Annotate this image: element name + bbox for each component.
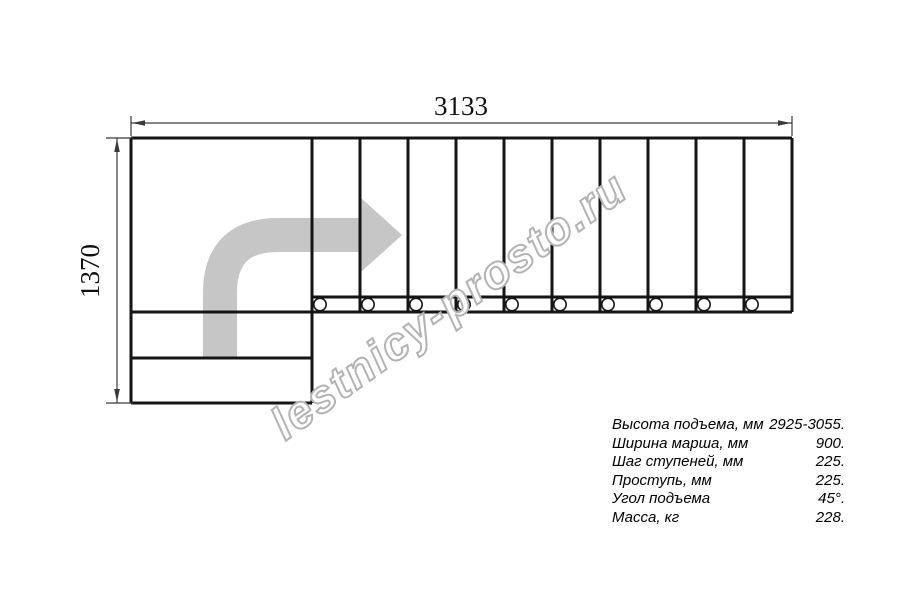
spec-value: 45°. [818,490,845,509]
spec-label: Высота подъема, мм [612,416,764,435]
spec-label: Масса, кг [612,509,679,528]
baluster-circle [314,298,326,310]
spec-value: 900. [816,435,845,454]
staircase-plan-page: 3133 1370 lestnicy-prosto.ru Высота подъ… [0,0,900,600]
spec-value: 225. [816,472,845,491]
spec-row: Шаг ступеней, мм 225. [612,453,845,472]
height-dimension: 1370 [75,138,133,403]
direction-arrow-head [361,198,402,272]
baluster-circle [698,298,710,310]
baluster-circle [554,298,566,310]
baluster-circles [314,298,758,310]
spec-row: Ширина марша, мм 900. [612,435,845,454]
spec-label: Ширина марша, мм [612,435,748,454]
width-dimension-label: 3133 [434,91,488,121]
spec-label: Угол подъема [612,490,710,509]
dimension-arrowhead-top [114,139,120,152]
width-dimension: 3133 [131,91,792,136]
dimension-arrowhead-bottom [114,389,120,402]
spec-row: Угол подъема 45°. [612,490,845,509]
height-dimension-label: 1370 [75,244,105,298]
height-dimension-lines [106,138,133,403]
baluster-circle [602,298,614,310]
dimension-arrowhead-left [132,120,145,126]
spec-value: 228. [816,509,845,528]
specs-table: Высота подъема, мм 2925-3055. Ширина мар… [612,416,845,528]
spec-row: Масса, кг 228. [612,509,845,528]
spec-row: Высота подъема, мм 2925-3055. [612,416,845,435]
spec-value: 2925-3055. [769,416,845,435]
baluster-circle [506,298,518,310]
spec-value: 225. [816,453,845,472]
baluster-circle [746,298,758,310]
spec-label: Шаг ступеней, мм [612,453,743,472]
dimension-arrowhead-right [778,120,791,126]
baluster-circle [650,298,662,310]
spec-row: Проступь, мм 225. [612,472,845,491]
baluster-circle [362,298,374,310]
spec-label: Проступь, мм [612,472,712,491]
